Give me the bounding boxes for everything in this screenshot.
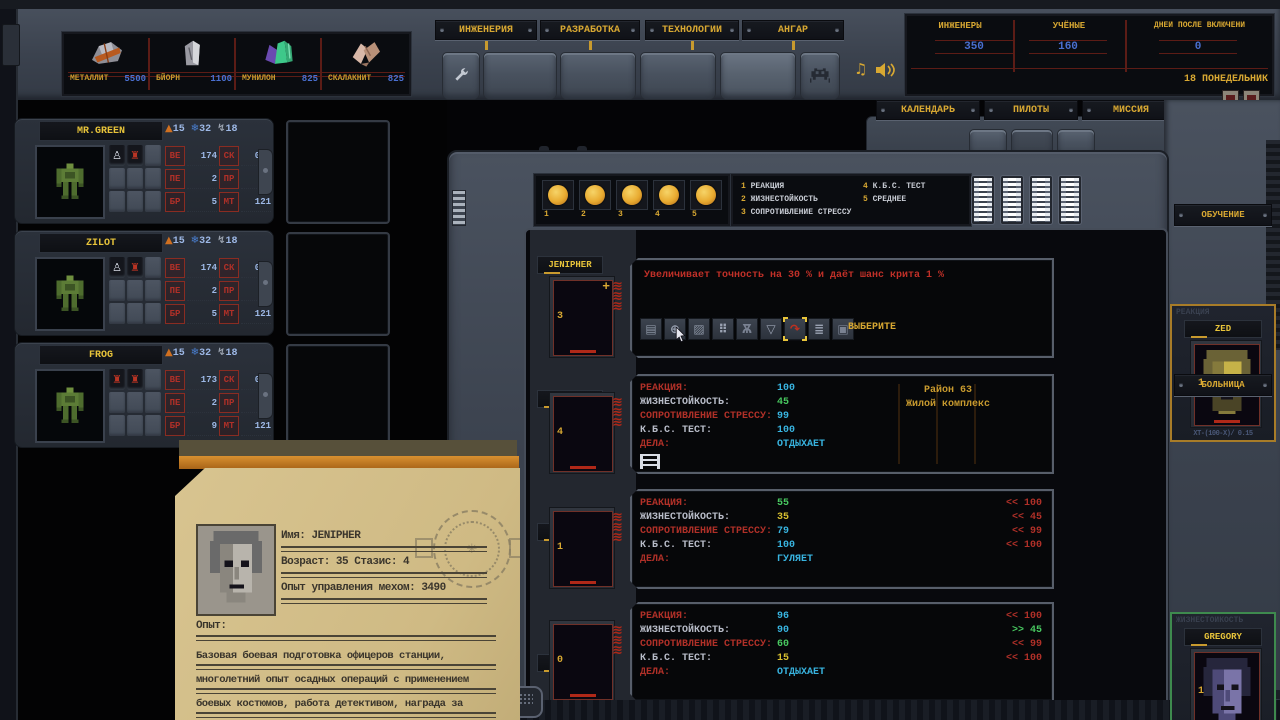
resource-value: 5500	[124, 74, 146, 84]
test-buttons: 1 2 3 4 5	[536, 176, 728, 223]
tab-tick	[792, 41, 795, 50]
dossier-text-line: многолетний опыт осадных операций с прим…	[196, 674, 469, 686]
stat-label: СОПРОТИВЛЕНИЕ СТРЕССУ:	[640, 411, 772, 422]
folder-orange-strip	[179, 456, 519, 469]
pilot-face	[1195, 653, 1259, 720]
stat-label: СОПРОТИВЛЕНИЕ СТРЕССУ:	[640, 526, 772, 537]
resource-cell-0: МЕТАЛЛИТ 5500	[64, 34, 150, 94]
resource-value: 825	[388, 74, 404, 84]
mech-slot-empty[interactable]	[127, 392, 143, 413]
stat-value: 90	[777, 624, 825, 638]
tab-tick	[691, 41, 694, 50]
skalaknit-ore-icon	[322, 34, 408, 72]
stat-compare: << 100	[966, 539, 1042, 553]
blank-key-1[interactable]	[483, 52, 557, 100]
stat-value: ГУЛЯЕТ	[777, 553, 813, 567]
stat-values: 96906015ОТДЫХАЕТ	[777, 610, 825, 680]
underline	[281, 572, 487, 578]
test-button-4[interactable]: 4	[653, 180, 685, 219]
stat-compare: >> 45	[966, 624, 1042, 638]
days-label: ДНЕЙ ПОСЛЕ ВКЛЮЧЕНИ	[1127, 21, 1272, 30]
level-up-plus-icon[interactable]: +	[602, 280, 610, 294]
mech-stat-label: ВЕ	[165, 258, 185, 278]
empty-mech-slot-1[interactable]	[286, 120, 390, 224]
power-icon: ↯	[217, 347, 225, 358]
coolant-icon: ❄	[191, 347, 199, 358]
stat-labels: РЕАКЦИЯ:ЖИЗНЕСТОЙКОСТЬ:СОПРОТИВЛЕНИЕ СТР…	[640, 497, 772, 567]
training-card-zed[interactable]: РЕАКЦИЯ ZED 1 ХТ-(100-Х)/ 0.15	[1170, 304, 1276, 442]
pilot-info-ellen: РЕАКЦИЯ:ЖИЗНЕСТОЙКОСТЬ:СОПРОТИВЛЕНИЕ СТР…	[630, 489, 1054, 589]
armor-stripes-icon[interactable]: ▤	[640, 318, 662, 340]
mech-slot-empty[interactable]	[109, 392, 125, 413]
legend-item: 2 ЖИЗНЕСТОЙКОСТЬ	[741, 193, 851, 206]
empty-mech-slot-3[interactable]	[286, 344, 390, 448]
pilot-level: 4	[557, 427, 563, 438]
mech-stat-label: БР	[165, 304, 185, 324]
empty-mech-slot-2[interactable]	[286, 232, 390, 336]
mech-slot-empty[interactable]	[145, 369, 161, 390]
pilot-info-freez: РЕАКЦИЯ:ЖИЗНЕСТОЙКОСТЬ:СОПРОТИВЛЕНИЕ СТР…	[630, 374, 1054, 474]
tab-ангар[interactable]: АНГАР	[742, 20, 844, 40]
underline	[196, 664, 496, 670]
engineers-label: ИНЖЕНЕРЫ	[907, 21, 1013, 31]
tab-технологии[interactable]: ТЕХНОЛОГИИ	[645, 20, 739, 40]
stress-waves-icon: ≋≋≋	[612, 282, 623, 312]
days-value: 0	[1159, 40, 1237, 54]
pilot-level: 3	[557, 311, 563, 322]
pilot-level: 0	[557, 655, 563, 666]
pilot-portrait-ellen[interactable]: 1	[549, 507, 615, 589]
sound-toggle-icon[interactable]	[876, 63, 896, 77]
mech-stat-label: БР	[165, 416, 185, 436]
shield-icon[interactable]: ▽	[760, 318, 782, 340]
power-icon: ↯	[217, 123, 225, 134]
mech-slot-empty[interactable]	[145, 303, 161, 324]
mech-stat-label: ПР	[219, 393, 239, 413]
dossier-photo	[196, 524, 276, 616]
stat-label: ДЕЛА:	[640, 667, 670, 678]
mech-stat-label: ВЕ	[165, 370, 185, 390]
yellow-button-icon	[659, 185, 679, 205]
stat-labels: РЕАКЦИЯ:ЖИЗНЕСТОЙКОСТЬ:СОПРОТИВЛЕНИЕ СТР…	[640, 382, 772, 452]
signal-gauges	[972, 176, 1081, 224]
legend-item: 5 СРЕДНЕЕ	[863, 193, 925, 206]
left-edge-bracket	[2, 24, 20, 66]
mech-stat-label: МТ	[219, 192, 239, 212]
stat-compare: << 100	[966, 610, 1042, 624]
stat-value: 45	[777, 396, 825, 410]
stat-labels: РЕАКЦИЯ:ЖИЗНЕСТОЙКОСТЬ:СОПРОТИВЛЕНИЕ СТР…	[640, 610, 772, 680]
pilot-module-icon[interactable]: ♙	[109, 257, 125, 278]
dossier-text-line: Базовая боевая подготовка офицеров станц…	[196, 650, 445, 662]
ghost-stat-label: ЖИЗНЕСТОЙКОСТЬ	[1176, 616, 1272, 625]
weapon-module-icon[interactable]: ♜	[109, 369, 125, 390]
resource-value: 1100	[210, 74, 232, 84]
hospital-title: БОЛЬНИЦА	[1201, 380, 1244, 390]
stat-label: РЕАКЦИЯ:	[640, 498, 688, 509]
stats-divider	[911, 68, 1268, 71]
mech-stat-value: 121	[241, 192, 271, 212]
mech-slot-empty[interactable]	[145, 415, 161, 436]
stat-value: 100	[777, 424, 825, 438]
mech-card-tab	[258, 149, 273, 195]
test-button-2[interactable]: 2	[579, 180, 611, 219]
yellow-button-icon	[622, 185, 642, 205]
perk-icon-row: ▤⊕▨⠿Ѫ▽↷≣▣	[640, 318, 854, 340]
stat-value: ОТДЫХАЕТ	[777, 666, 825, 680]
engineers-value: 350	[935, 40, 1013, 54]
munilon-crystal-icon	[236, 34, 322, 72]
heat-icon: ▲	[165, 123, 173, 134]
mech-name: FROG	[39, 345, 163, 365]
mech-card-zilot[interactable]: ZILOT ▲15 ❄32 ↯18 ♙♜ ВЕ174СК092ПЕ2ПР14БР…	[14, 230, 274, 336]
mech-slot-empty[interactable]	[145, 168, 161, 189]
gauge-meter	[1030, 176, 1052, 224]
underline	[196, 688, 496, 694]
mech-slot-empty[interactable]	[109, 191, 125, 212]
mech-stat-value: 5	[187, 304, 217, 324]
mech-slot-empty[interactable]	[109, 168, 125, 189]
dossier-age: Возраст: 35 Стазис: 4	[281, 556, 409, 568]
pilot-portrait-freez[interactable]: 4	[549, 392, 615, 474]
dossier-text-line: боевых костюмов, работа детективом, нагр…	[196, 698, 463, 710]
mech-slot-empty[interactable]	[145, 257, 161, 278]
metallit-ore-icon	[64, 34, 150, 72]
top-edge	[0, 0, 1280, 9]
dossier-face	[200, 528, 272, 612]
pilot-location: Район 63Жилой комплекс	[906, 384, 990, 412]
biorn-ore-icon	[150, 34, 236, 72]
mech-slot-empty[interactable]	[127, 415, 143, 436]
resource-value: 825	[302, 74, 318, 84]
stat-compare: << 99	[966, 638, 1042, 652]
invader-icon	[810, 68, 830, 83]
ghost-stat-label: РЕАКЦИЯ	[1176, 308, 1272, 317]
resources-panel: МЕТАЛЛИТ 5500 БЙОРН 1100 МУНИЛОН 825 СКА…	[62, 32, 411, 96]
resource-label: СКАЛАКНИТ	[328, 74, 371, 84]
wrench-key-button[interactable]	[442, 52, 480, 100]
scientists-label: УЧЁНЫЕ	[1015, 21, 1123, 31]
pilot-level: 1	[1198, 686, 1204, 697]
mech-stat-label: ВЕ	[165, 146, 185, 166]
resource-label: БЙОРН	[156, 74, 180, 84]
gauge-meter	[1001, 176, 1023, 224]
test-button-1[interactable]: 1	[542, 180, 574, 219]
mech-module-grid: ♙♜	[109, 257, 161, 324]
mech-slot-empty[interactable]	[145, 280, 161, 301]
pilot-module-icon[interactable]: ♙	[109, 145, 125, 166]
legend-item: 3 СОПРОТИВЛЕНИЕ СТРЕССУ	[741, 206, 851, 219]
mech-stat-label: ПЕ	[165, 393, 185, 413]
blank-key-4[interactable]	[720, 52, 796, 100]
stat-value: 96	[777, 610, 825, 624]
coolant-icon: ❄	[191, 235, 199, 246]
mech-stat-label: СК	[219, 370, 239, 390]
pilot-portrait-barbara[interactable]: 0	[549, 620, 615, 702]
stat-label: ДЕЛА:	[640, 439, 670, 450]
tab-tick	[589, 41, 592, 50]
stat-label: ДЕЛА:	[640, 554, 670, 565]
mech-stat-value: 2	[187, 393, 217, 413]
camo-icon[interactable]: ▨	[688, 318, 710, 340]
training-header: ОБУЧЕНИЕ	[1174, 204, 1272, 226]
resource-label: МЕТАЛЛИТ	[70, 74, 108, 84]
legend-item: 4 К.Б.С. ТЕСТ	[863, 180, 925, 193]
stamp-tab-right	[509, 538, 523, 558]
stat-label: К.Б.С. ТЕСТ:	[640, 540, 712, 551]
compare-column: << 100>> 45<< 99<< 100	[966, 610, 1042, 666]
stat-label: ЖИЗНЕСТОЙКОСТЬ:	[640, 397, 730, 408]
perk-description: Увеличивает точность на 30 % и даёт шанс…	[644, 270, 944, 281]
weapon-module-icon[interactable]: ♜	[127, 145, 143, 166]
mech-card-tab	[258, 373, 273, 419]
tab-tick	[485, 41, 488, 50]
stat-value: 99	[777, 410, 825, 424]
mech-stat-value: 2	[187, 169, 217, 189]
mech-stat-label: ПР	[219, 169, 239, 189]
mech-portrait[interactable]	[35, 369, 105, 443]
yellow-button-icon	[696, 185, 716, 205]
mech-stat-label: ПЕ	[165, 281, 185, 301]
mech-module-grid: ♙♜	[109, 145, 161, 212]
resource-list: МЕТАЛЛИТ 5500 БЙОРН 1100 МУНИЛОН 825 СКА…	[64, 34, 409, 94]
dossier-exp: Опыт управления мехом: 3490	[281, 582, 446, 594]
mech-slot-empty[interactable]	[127, 303, 143, 324]
resource-cell-2: МУНИЛОН 825	[236, 34, 322, 94]
mech-meters: ▲15 ❄32 ↯18	[165, 123, 238, 135]
mech-stat-value: 9	[187, 416, 217, 436]
music-toggle-icon[interactable]: ♫	[854, 60, 867, 78]
test-legend-box: 1 РЕАКЦИЯ 2 ЖИЗНЕСТОЙКОСТЬ 3 СОПРОТИВЛЕН…	[731, 174, 971, 226]
mech-stat-label: ПР	[219, 281, 239, 301]
stat-label: РЕАКЦИЯ:	[640, 611, 688, 622]
training-title: ОБУЧЕНИЕ	[1201, 210, 1244, 220]
pilot-name-plate: ZED	[1184, 320, 1262, 338]
stat-label: К.Б.С. ТЕСТ:	[640, 425, 712, 436]
stat-value: 100	[777, 539, 813, 553]
mech-portrait[interactable]	[35, 257, 105, 331]
stat-value: 15	[777, 652, 825, 666]
mech-stat-label: СК	[219, 258, 239, 278]
ladder-icon	[640, 454, 660, 469]
mech-stat-value: 121	[241, 304, 271, 324]
pilot-name-plate: JENIPHER	[537, 256, 603, 274]
stat-label: ЖИЗНЕСТОЙКОСТЬ:	[640, 512, 730, 523]
tab-разработка[interactable]: РАЗРАБОТКА	[540, 20, 640, 40]
pilot-level: 1	[557, 542, 563, 553]
choose-label: ВЫБЕРИТЕ	[848, 322, 896, 333]
mech-stat-label: ПЕ	[165, 169, 185, 189]
station-stats-panel: ИНЖЕНЕРЫ УЧЁНЫЕ ДНЕЙ ПОСЛЕ ВКЛЮЧЕНИ 350 …	[905, 14, 1274, 96]
hospital-header: БОЛЬНИЦА	[1174, 374, 1272, 396]
mech-name: MR.GREEN	[39, 121, 163, 141]
frame-gauge-deco	[452, 190, 466, 226]
mech-slot-empty[interactable]	[109, 415, 125, 436]
weapon-module-icon[interactable]: ♜	[127, 369, 143, 390]
dodge-arrow-icon[interactable]: ↷	[784, 318, 806, 340]
stress-waves-icon: ≋≋≋	[612, 398, 623, 428]
dossier-sheet: ✳ Имя: JENIPHER Возраст: 35 Стазис: 4 Оп…	[175, 468, 520, 720]
weapon-module-icon[interactable]: ♜	[127, 257, 143, 278]
stat-value: 100	[777, 382, 825, 396]
scientists-value: 160	[1029, 40, 1107, 54]
heat-icon: ▲	[165, 347, 173, 358]
underline	[196, 635, 496, 641]
mech-stat-label: БР	[165, 192, 185, 212]
game-screen: МЕТАЛЛИТ 5500 БЙОРН 1100 МУНИЛОН 825 СКА…	[0, 0, 1280, 720]
stat-values: 1004599100ОТДЫХАЕТ	[777, 382, 825, 452]
ladder-icon[interactable]: ≣	[808, 318, 830, 340]
mech-slot-empty[interactable]	[127, 168, 143, 189]
stat-label: ЖИЗНЕСТОЙКОСТЬ:	[640, 625, 730, 636]
mech-stats: ВЕ174СК092ПЕ2ПР14БР5МТ121	[165, 146, 271, 212]
underline	[281, 546, 487, 552]
mech-slot-empty[interactable]	[127, 191, 143, 212]
mech-slot-empty[interactable]	[109, 280, 125, 301]
side-tab-1[interactable]: ПИЛОТЫ	[984, 100, 1078, 120]
mech-meters: ▲15 ❄32 ↯18	[165, 347, 238, 359]
mech-card-tab	[258, 261, 273, 307]
legend-item: 1 РЕАКЦИЯ	[741, 180, 851, 193]
crosshair-icon[interactable]: ⊕	[664, 318, 686, 340]
mech-card-frog[interactable]: FROG ▲15 ❄32 ↯18 ♜♜ ВЕ173СК092ПЕ2ПР14БР9…	[14, 342, 274, 448]
pilot-level: 1	[1198, 378, 1204, 389]
date-text: 18 ПОНЕДЕЛЬНИК	[1184, 74, 1268, 85]
resource-cell-1: БЙОРН 1100	[150, 34, 236, 94]
resource-cell-3: СКАЛАКНИТ 825	[322, 34, 408, 94]
pilot-info-barbara: РЕАКЦИЯ:ЖИЗНЕСТОЙКОСТЬ:СОПРОТИВЛЕНИЕ СТР…	[630, 602, 1054, 702]
mech-slot-empty[interactable]	[145, 392, 161, 413]
training-formula: ХТ-(100-Х)/ 0.15	[1172, 430, 1274, 438]
hospital-card-gregory[interactable]: ЖИЗНЕСТОЙКОСТЬ GREGORY 1 ХТ-(100-Х)/ 0.1…	[1170, 612, 1276, 720]
mech-stat-label: МТ	[219, 416, 239, 436]
mech-stats: ВЕ174СК092ПЕ2ПР14БР5МТ121	[165, 258, 271, 324]
bottom-band	[455, 700, 1280, 720]
test-buttons-box: 1 2 3 4 5	[534, 174, 730, 226]
mech-meters: ▲15 ❄32 ↯18	[165, 235, 238, 247]
mech-slot-empty[interactable]	[145, 191, 161, 212]
mech-stat-value: 174	[187, 258, 217, 278]
stat-label: СОПРОТИВЛЕНИЕ СТРЕССУ:	[640, 639, 772, 650]
stat-value: 55	[777, 497, 813, 511]
yellow-button-icon	[585, 185, 605, 205]
stat-value: 79	[777, 525, 813, 539]
blank-key-2[interactable]	[560, 52, 636, 100]
stat-compare: << 45	[966, 511, 1042, 525]
mech-stat-value: 173	[187, 370, 217, 390]
pilot-portrait-jenipher[interactable]: 3 +	[549, 276, 615, 358]
stress-waves-icon: ≋≋≋	[612, 626, 623, 656]
dossier-name: Имя: JENIPHER	[281, 530, 360, 542]
mech-stat-label: МТ	[219, 304, 239, 324]
invader-key-button[interactable]	[800, 52, 840, 100]
test-button-3[interactable]: 3	[616, 180, 648, 219]
stat-compare: << 100	[966, 652, 1042, 666]
ammo-rows-icon[interactable]: ⠿	[712, 318, 734, 340]
mech-slot-empty[interactable]	[127, 280, 143, 301]
mech-module-grid: ♜♜	[109, 369, 161, 436]
mech-stat-label: СК	[219, 146, 239, 166]
underline	[281, 598, 487, 604]
tab-инженерия[interactable]: ИНЖЕНЕРИЯ	[435, 20, 537, 40]
mech-portrait[interactable]	[35, 145, 105, 219]
frame-bumps	[539, 146, 587, 151]
pilot-info-jenipher: Увеличивает точность на 30 % и даёт шанс…	[630, 258, 1054, 358]
stat-label: РЕАКЦИЯ:	[640, 383, 688, 394]
blank-key-3[interactable]	[640, 52, 716, 100]
mech-slot-empty[interactable]	[109, 303, 125, 324]
stat-value: 35	[777, 511, 813, 525]
gauge-meter	[972, 176, 994, 224]
stat-values: 553579100ГУЛЯЕТ	[777, 497, 813, 567]
power-icon: ↯	[217, 235, 225, 246]
mech-stat-value: 174	[187, 146, 217, 166]
yellow-button-icon	[548, 185, 568, 205]
mech-slot-empty[interactable]	[145, 145, 161, 166]
dossier-section: Опыт:	[196, 620, 227, 632]
pilot-dossier: ✳ Имя: JENIPHER Возраст: 35 Стазис: 4 Оп…	[175, 438, 523, 720]
stat-label: К.Б.С. ТЕСТ:	[640, 653, 712, 664]
compare-column: << 100<< 45<< 99<< 100	[966, 497, 1042, 553]
stat-value: 60	[777, 638, 825, 652]
gauge-meter	[1059, 176, 1081, 224]
stat-compare: << 100	[966, 497, 1042, 511]
mech-card-mr.green[interactable]: MR.GREEN ▲15 ❄32 ↯18 ♙♜ ВЕ174СК092ПЕ2ПР1…	[14, 118, 274, 224]
pilot-portrait[interactable]: 1	[1190, 648, 1262, 720]
mech-stat-value: 5	[187, 192, 217, 212]
test-button-5[interactable]: 5	[690, 180, 722, 219]
heat-icon: ▲	[165, 235, 173, 246]
coolant-icon: ❄	[191, 123, 199, 134]
pilot-name-plate: GREGORY	[1184, 628, 1262, 646]
mech-stats: ВЕ173СК092ПЕ2ПР14БР9МТ121	[165, 370, 271, 436]
resource-label: МУНИЛОН	[242, 74, 276, 84]
stress-waves-icon: ≋≋≋	[612, 513, 623, 543]
stat-value: ОТДЫХАЕТ	[777, 438, 825, 452]
mech-stat-value: 2	[187, 281, 217, 301]
mech-name: ZILOT	[39, 233, 163, 253]
mech-stat-value: 121	[241, 416, 271, 436]
side-tab-0[interactable]: КАЛЕНДАРЬ	[876, 100, 980, 120]
stat-compare: << 99	[966, 525, 1042, 539]
wrench-icon	[452, 66, 470, 84]
underline	[196, 712, 496, 718]
wings-icon[interactable]: Ѫ	[736, 318, 758, 340]
